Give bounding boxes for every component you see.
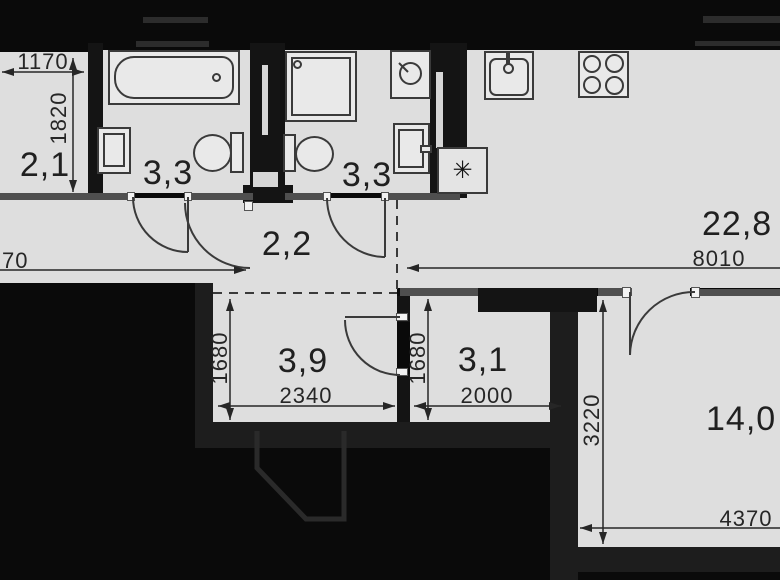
door-arc-bedroom — [630, 292, 695, 355]
door-arc-inner-hall — [345, 320, 400, 375]
plan-linework — [0, 0, 780, 580]
washer-door-notch — [399, 63, 408, 72]
floor-plan: ✳ — [0, 0, 780, 580]
dim-label-1680-left: 1680 — [207, 332, 233, 385]
dim-label-1820: 1820 — [46, 92, 72, 145]
dim-label-2340: 2340 — [274, 383, 338, 409]
dim-label-1680-right: 1680 — [405, 332, 431, 385]
dim-label-4370: 4370 — [713, 506, 779, 532]
door-arc-bath1 — [133, 197, 188, 252]
room-area-bath2: 3,3 — [336, 156, 398, 195]
dim-label-2000: 2000 — [456, 383, 518, 409]
room-area-kitchen-living: 22,8 — [702, 205, 772, 244]
dim-arrowheads — [2, 58, 607, 544]
dim-label-3220: 3220 — [579, 394, 605, 447]
door-arc-entrance — [185, 203, 250, 268]
room-area-hall: 2,2 — [256, 225, 318, 264]
balcony-outline — [257, 431, 344, 519]
door-arc-bath2 — [327, 198, 385, 257]
room-area-wardrobe: 3,1 — [452, 341, 514, 380]
room-area-bath1: 3,3 — [138, 154, 198, 193]
dim-label-1170: 1170 — [13, 49, 73, 75]
dim-label-70: 70 — [2, 248, 28, 274]
room-area-storage: 2,1 — [16, 146, 74, 185]
room-area-bedroom: 14,0 — [706, 400, 776, 439]
room-area-inner-hall: 3,9 — [272, 342, 334, 381]
dim-label-8010: 8010 — [688, 246, 750, 272]
